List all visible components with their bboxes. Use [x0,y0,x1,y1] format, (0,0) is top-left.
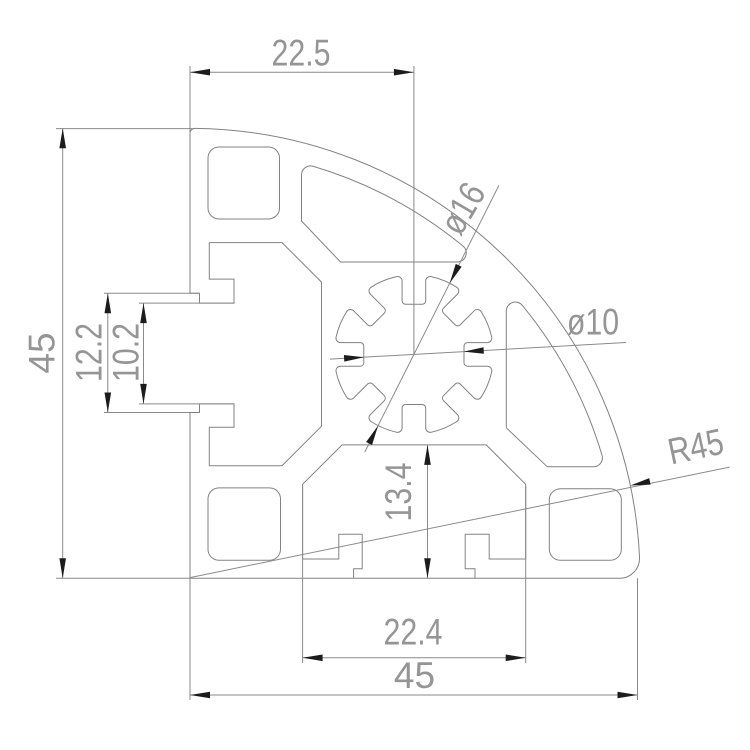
svg-text:ø16: ø16 [432,176,494,242]
svg-text:22.4: 22.4 [383,611,442,653]
svg-text:10.2: 10.2 [105,323,147,382]
svg-text:ø10: ø10 [567,301,619,343]
svg-text:12.2: 12.2 [68,323,110,382]
svg-text:45: 45 [21,332,62,373]
svg-text:R45: R45 [664,421,727,473]
svg-text:13.4: 13.4 [378,462,420,521]
svg-text:22.5: 22.5 [271,32,330,74]
svg-text:45: 45 [394,655,435,696]
